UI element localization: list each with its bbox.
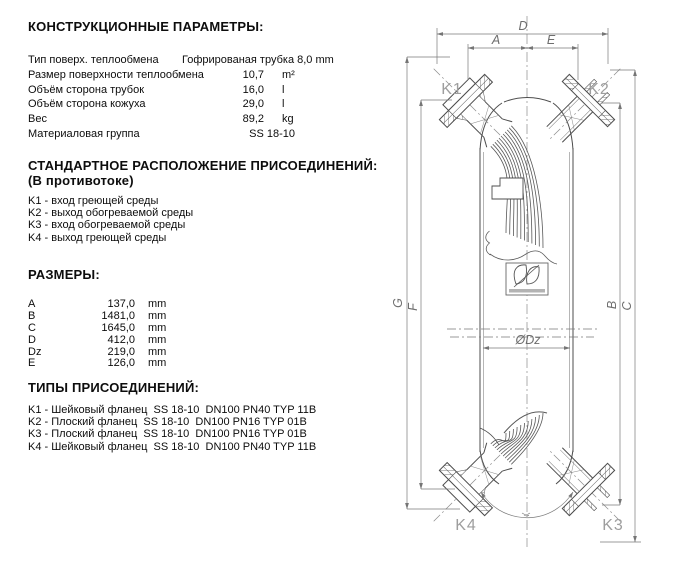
port-label-k3: K3 (602, 517, 624, 534)
dim-label-dz: ØDz (515, 333, 542, 347)
support-plate (492, 178, 523, 199)
dim-label-b: B (605, 301, 619, 309)
flange-k3 (526, 427, 643, 544)
dim-label-c: C (620, 301, 634, 311)
port-label-k4: K4 (455, 517, 477, 534)
manufacturer-logo (506, 263, 548, 295)
port-label-k2: K2 (588, 81, 610, 98)
bundle-break-line (486, 231, 557, 264)
dim-label-g: G (391, 298, 405, 308)
dim-label-d: D (518, 19, 527, 33)
dim-label-a: A (491, 33, 500, 47)
dim-label-e: E (547, 33, 556, 47)
datasheet-page: КОНСТРУКЦИОННЫЕ ПАРАМЕТРЫ: Тип поверх. т… (0, 0, 700, 569)
tube-bundle-bottom (491, 412, 547, 464)
port-label-k1: K1 (441, 81, 463, 98)
flange-k1 (411, 46, 528, 163)
dim-label-f: F (406, 302, 420, 311)
technical-drawing: D A E G F B C ØDz K1 K2 K3 K4 (0, 0, 700, 569)
flange-k2 (526, 46, 643, 163)
